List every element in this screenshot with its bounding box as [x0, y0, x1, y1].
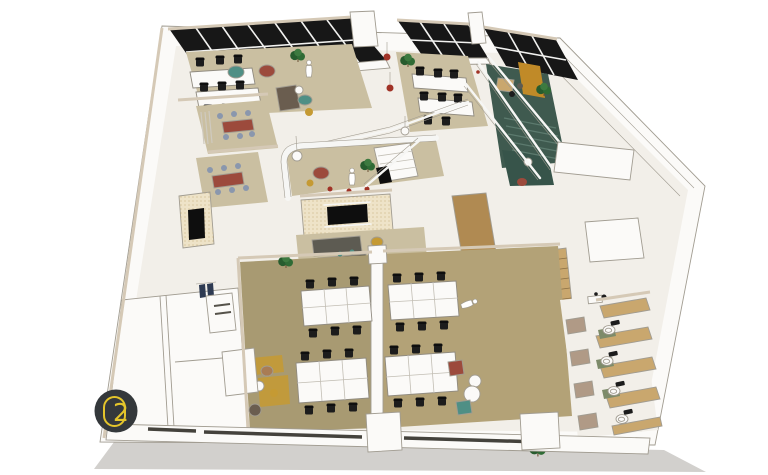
office-chair	[345, 349, 354, 358]
sink-counter	[566, 317, 586, 334]
office-chair	[434, 344, 443, 353]
stair-chair	[517, 83, 523, 89]
office-chair	[415, 273, 424, 282]
lounge-chair-teal	[298, 95, 312, 105]
office-chair	[416, 67, 425, 76]
office-chair	[306, 280, 315, 289]
office-chair	[349, 403, 358, 412]
meeting-chair	[231, 111, 237, 117]
office-chair	[438, 397, 447, 406]
office-chair	[236, 81, 245, 90]
room-right-lower	[585, 218, 644, 262]
bean-bag-teal	[228, 66, 244, 78]
office-chair	[418, 322, 427, 331]
office-chair	[200, 83, 209, 92]
sphere-pendant-lamp	[401, 127, 409, 135]
entrance-block	[366, 412, 402, 452]
office-chair	[309, 329, 318, 338]
office-chair	[450, 70, 459, 79]
center-spine-wall	[371, 251, 383, 430]
person-figure	[306, 60, 312, 77]
exit-marker	[476, 70, 480, 74]
carpet-right	[383, 246, 572, 428]
facade-block	[520, 412, 560, 450]
office-chair	[234, 55, 243, 64]
stair-chair-red	[517, 178, 527, 186]
office-chair	[301, 352, 310, 361]
office-chair	[394, 399, 403, 408]
office-chair	[393, 274, 402, 283]
meeting-chair	[229, 187, 235, 193]
floor-plan-illustration: 2	[0, 0, 768, 475]
storage-block	[222, 348, 258, 396]
armchair-round	[249, 404, 261, 416]
office-chair	[216, 56, 225, 65]
sphere-pendant-lamp	[292, 151, 302, 161]
sink-counter	[578, 413, 598, 430]
office-chair	[305, 406, 314, 415]
spine-pillar	[368, 245, 387, 264]
meeting-chair	[235, 163, 241, 169]
office-chair	[396, 323, 405, 332]
bean-bag-red	[259, 65, 275, 77]
meeting-chair	[207, 167, 213, 173]
pouf-teal	[456, 400, 472, 415]
office-chair	[218, 82, 227, 91]
office-chair	[350, 277, 359, 286]
meeting-chair	[221, 165, 227, 171]
lounge-chair-red	[313, 167, 329, 179]
tv-feature-wall	[301, 194, 393, 236]
roof-column-1	[350, 11, 378, 47]
badge-number: 2	[113, 398, 129, 427]
printer-cabinet	[206, 293, 236, 333]
floor-plan-page: 2	[0, 0, 768, 475]
tv-screen	[188, 208, 205, 240]
office-chair	[353, 326, 362, 335]
sphere-floor-lamp	[469, 375, 481, 387]
floor-badge: 2	[95, 390, 138, 433]
person-figure	[349, 168, 355, 185]
decor-ball-red	[328, 187, 333, 192]
office-chair	[438, 93, 447, 102]
pendant-lamp-red	[384, 54, 391, 61]
pouf-red	[448, 360, 464, 376]
office-chair	[416, 398, 425, 407]
office-chair	[440, 321, 449, 330]
office-chair	[327, 404, 336, 413]
sink-counter	[574, 381, 594, 398]
meeting-chair	[237, 133, 243, 139]
tv-room-west	[179, 192, 214, 248]
office-chair	[196, 58, 205, 67]
office-chair	[420, 92, 429, 101]
office-chair	[437, 272, 446, 281]
office-chair	[434, 69, 443, 78]
meeting-chair	[223, 134, 229, 140]
sink-counter	[570, 349, 590, 366]
tv-screen	[327, 204, 368, 225]
armchair-tan	[261, 366, 273, 376]
meeting-chair	[249, 131, 255, 137]
meeting-table	[222, 119, 254, 133]
office-chair	[390, 346, 399, 355]
pouf-gold	[307, 180, 314, 187]
pouf-gold	[305, 108, 313, 116]
meeting-chair	[217, 113, 223, 119]
meeting-chair	[243, 185, 249, 191]
office-chair	[412, 345, 421, 354]
round-table	[464, 386, 480, 402]
side-table	[295, 86, 303, 94]
office-chair	[442, 117, 451, 126]
meeting-chair	[245, 110, 251, 116]
meeting-chair	[215, 189, 221, 195]
office-chair	[323, 350, 332, 359]
pouf-gold	[270, 389, 278, 397]
office-chair	[331, 327, 340, 336]
pendant-lamp-red	[387, 85, 394, 92]
office-chair	[328, 278, 337, 287]
